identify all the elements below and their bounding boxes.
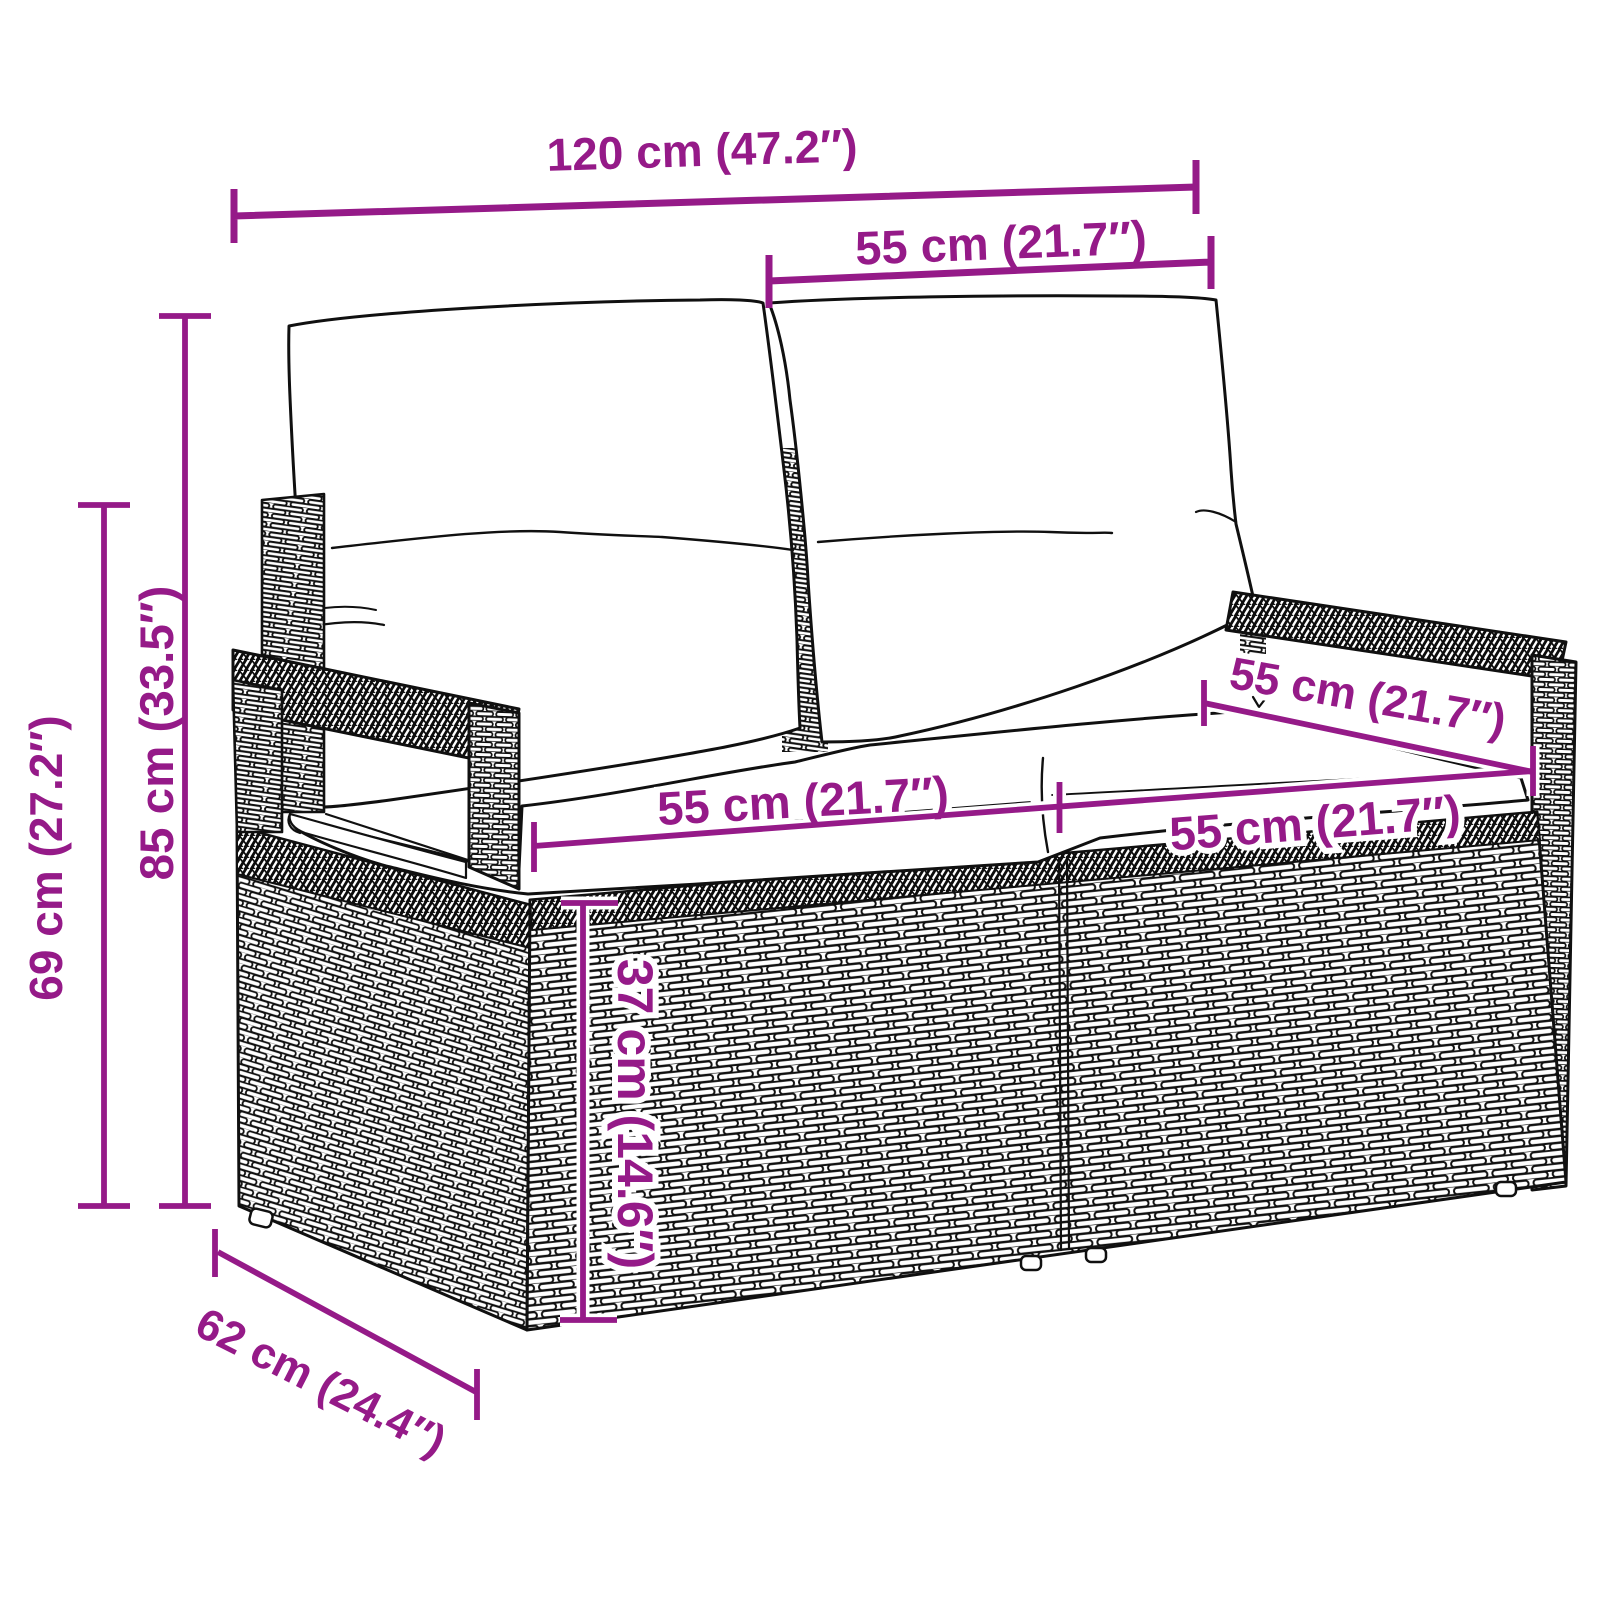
svg-text:69 cm (27.2″): 69 cm (27.2″)	[20, 715, 72, 1000]
svg-text:85 cm (33.5″): 85 cm (33.5″)	[131, 586, 184, 881]
svg-text:120 cm (47.2″): 120 cm (47.2″)	[546, 119, 858, 181]
svg-text:37 cm (14.6″): 37 cm (14.6″)	[607, 959, 663, 1269]
